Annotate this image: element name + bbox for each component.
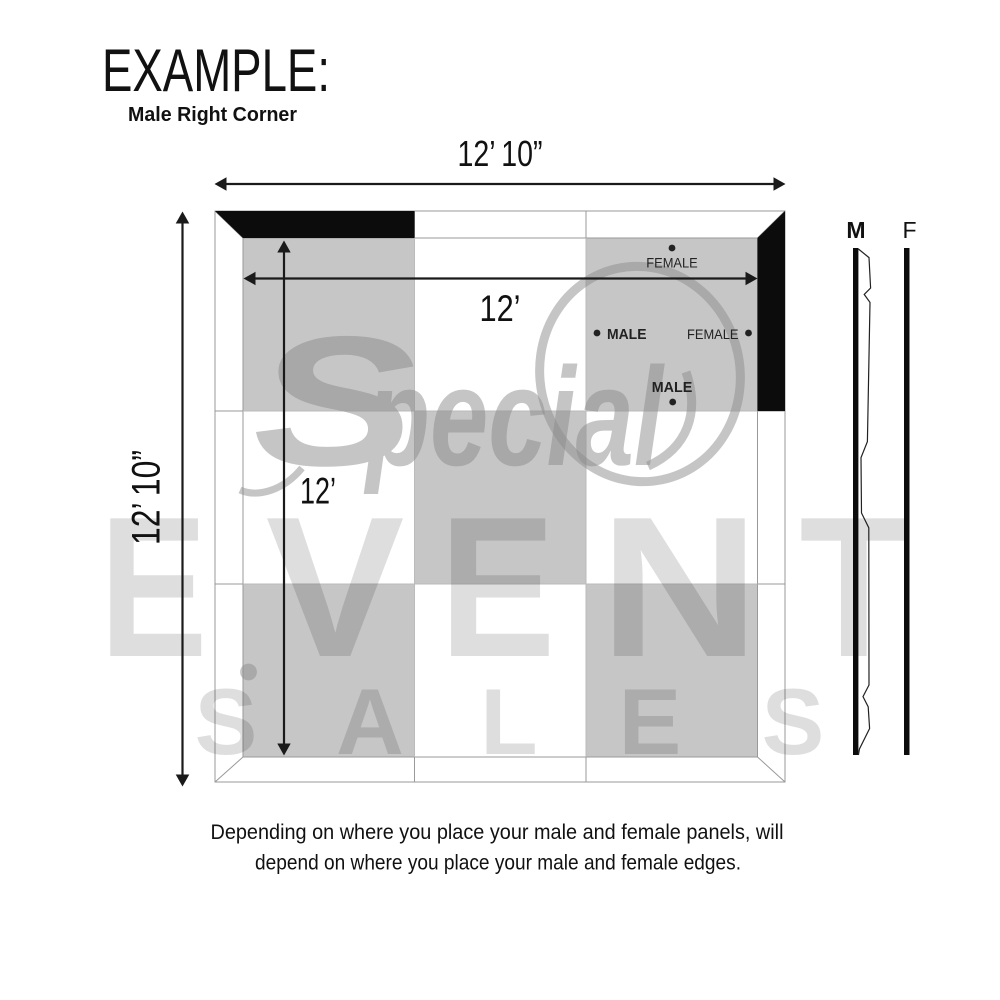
svg-text:12’: 12’ — [480, 287, 521, 329]
svg-text:Male Right Corner: Male Right Corner — [128, 104, 297, 126]
svg-text:N: N — [599, 475, 759, 698]
svg-text:S: S — [762, 669, 825, 774]
svg-text:E: E — [619, 669, 682, 774]
svg-text:12’: 12’ — [300, 470, 336, 512]
svg-text:Depending on where you place y: Depending on where you place your male a… — [211, 820, 784, 844]
svg-text:MALE: MALE — [607, 326, 647, 343]
svg-text:12’ 10”: 12’ 10” — [125, 450, 169, 545]
svg-text:E: E — [439, 475, 555, 699]
svg-text:L: L — [480, 669, 537, 774]
svg-text:12’ 10”: 12’ 10” — [458, 133, 543, 174]
svg-text:MALE: MALE — [652, 379, 693, 396]
svg-text:A: A — [336, 669, 404, 774]
svg-text:pecial: pecial — [363, 338, 665, 495]
svg-text:S: S — [195, 669, 258, 774]
svg-text:FEMALE: FEMALE — [687, 327, 739, 342]
svg-text:FEMALE: FEMALE — [646, 256, 698, 271]
svg-text:EXAMPLE:: EXAMPLE: — [102, 37, 330, 104]
svg-text:M: M — [846, 217, 865, 243]
svg-text:depend on where you place your: depend on where you place your male and … — [255, 851, 741, 875]
svg-text:F: F — [902, 217, 916, 243]
